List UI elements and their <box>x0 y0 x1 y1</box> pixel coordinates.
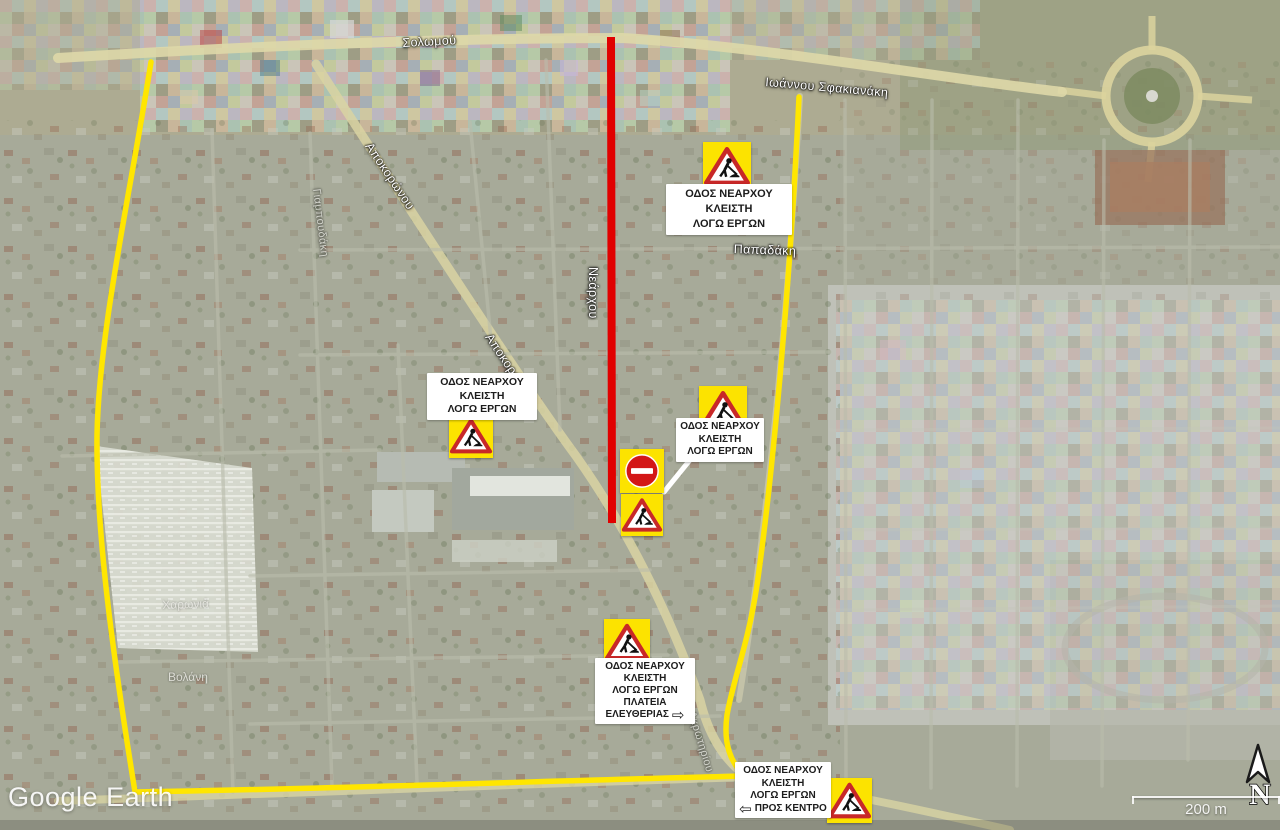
closure-label-line: ΚΛΕΙΣΤΗ <box>597 673 693 685</box>
closure-label-southeast: ΟΔΟΣ ΝΕΑΡΧΟΥ ΚΛΕΙΣΤΗ ΛΟΓΩ ΕΡΓΩΝ ⇦ ΠΡΟΣ Κ… <box>735 762 831 818</box>
area-label-volani: Βολάνη <box>168 670 208 684</box>
closure-label-west: ΟΔΟΣ ΝΕΑΡΧΟΥ ΚΛΕΙΣΤΗ ΛΟΓΩ ΕΡΓΩΝ <box>427 373 537 420</box>
street-label-nearchou: Νεάρχου <box>586 267 600 319</box>
google-earth-watermark: Google Earth <box>8 782 173 813</box>
area-label-charonia: Χαρωνιά <box>162 596 209 612</box>
closure-label-line: ΛΟΓΩ ΕΡΓΩΝ <box>597 685 693 697</box>
street-label-papadaki: Παπαδάκη <box>734 242 797 258</box>
closure-label-line: ΚΛΕΙΣΤΗ <box>429 390 535 404</box>
google-earth-map: Σολωμού Ιωάννου Σφακιανάκη Παπαδάκη Νεάρ… <box>0 0 1280 830</box>
closure-label-line: ΛΟΓΩ ΕΡΓΩΝ <box>429 403 535 417</box>
closure-label-mid: ΟΔΟΣ ΝΕΑΡΧΟΥ ΚΛΕΙΣΤΗ ΛΟΓΩ ΕΡΓΩΝ <box>676 418 764 462</box>
closure-label-north: ΟΔΟΣ ΝΕΑΡΧΟΥ ΚΛΕΙΣΤΗ ΛΟΓΩ ΕΡΓΩΝ <box>666 184 792 235</box>
roadworks-sign-southeast <box>827 778 872 823</box>
closure-label-line: ΟΔΟΣ ΝΕΑΡΧΟΥ <box>429 376 535 390</box>
scale-bar: 200 m <box>1132 796 1280 818</box>
scale-bar-label: 200 m <box>1132 801 1280 818</box>
closure-label-line: ΛΟΓΩ ΕΡΓΩΝ <box>668 217 790 232</box>
no-entry-sign <box>619 449 665 493</box>
closure-label-line: ΟΔΟΣ ΝΕΑΡΧΟΥ <box>597 661 693 673</box>
scale-bar-line <box>1132 796 1280 798</box>
closure-label-line: ΚΛΕΙΣΤΗ <box>668 202 790 217</box>
closure-label-line: ΟΔΟΣ ΝΕΑΡΧΟΥ <box>737 765 829 778</box>
closure-label-line: ΟΔΟΣ ΝΕΑΡΧΟΥ <box>678 421 762 434</box>
closure-label-line: ΠΡΟΣ ΚΕΝΤΡΟ <box>755 803 827 816</box>
closure-label-line: ΚΛΕΙΣΤΗ <box>737 778 829 791</box>
closure-label-line: ΕΛΕΥΘΕΡΙΑΣ <box>606 709 669 721</box>
roadworks-sign-north <box>703 142 751 190</box>
street-label-solomou: Σολωμού <box>402 33 457 50</box>
left-arrow-icon: ⇦ <box>739 804 752 814</box>
closure-label-line: ΟΔΟΣ ΝΕΑΡΧΟΥ <box>668 187 790 202</box>
closure-label-line: ΚΛΕΙΣΤΗ <box>678 434 762 447</box>
closed-road-line <box>611 37 612 523</box>
roadworks-sign-mid-lower <box>620 494 664 536</box>
closure-label-line: ΛΟΓΩ ΕΡΓΩΝ <box>678 446 762 459</box>
right-arrow-icon: ⇨ <box>672 710 685 720</box>
closure-label-south: ΟΔΟΣ ΝΕΑΡΧΟΥ ΚΛΕΙΣΤΗ ΛΟΓΩ ΕΡΓΩΝ ΠΛΑΤΕΙΑ … <box>595 658 695 724</box>
north-arrow-icon <box>1247 745 1269 782</box>
roadworks-sign-west <box>449 414 493 458</box>
